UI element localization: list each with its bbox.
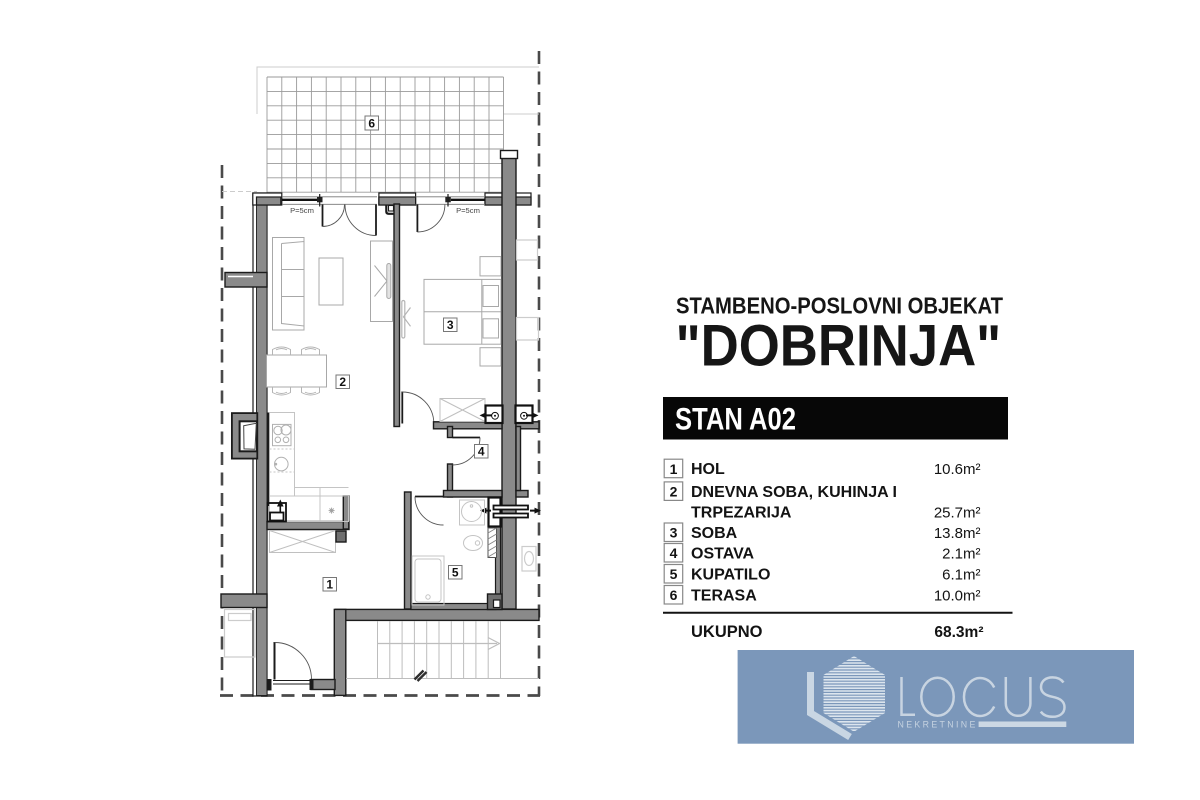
svg-text:DNEVNA SOBA, KUHINJA I: DNEVNA SOBA, KUHINJA I (691, 484, 897, 501)
svg-text:25.7m²: 25.7m² (934, 504, 981, 521)
svg-text:4: 4 (478, 445, 485, 459)
svg-text:P=5cm: P=5cm (290, 206, 314, 215)
svg-text:5: 5 (452, 566, 459, 580)
svg-text:TERASA: TERASA (691, 588, 757, 605)
svg-text:10.6m²: 10.6m² (934, 461, 981, 478)
svg-text:4: 4 (670, 545, 678, 561)
svg-text:3: 3 (447, 318, 454, 332)
svg-text:UKUPNO: UKUPNO (691, 623, 763, 641)
svg-text:P=5cm: P=5cm (456, 206, 480, 215)
svg-text:2: 2 (339, 375, 346, 389)
svg-text:OSTAVA: OSTAVA (691, 546, 755, 563)
svg-text:1: 1 (326, 578, 333, 592)
svg-text:3: 3 (670, 525, 678, 541)
svg-text:6.1m²: 6.1m² (942, 567, 980, 584)
svg-text:HOL: HOL (691, 461, 725, 478)
svg-text:STAN A02: STAN A02 (675, 401, 796, 437)
svg-text:TRPEZARIJA: TRPEZARIJA (691, 504, 792, 521)
svg-text:13.8m²: 13.8m² (934, 525, 981, 542)
svg-text:SOBA: SOBA (691, 525, 738, 542)
svg-text:6: 6 (670, 587, 678, 603)
svg-text:10.0m²: 10.0m² (934, 588, 981, 605)
svg-text:5: 5 (670, 566, 678, 582)
svg-text:2.1m²: 2.1m² (942, 546, 980, 563)
svg-text:NEKRETNINE: NEKRETNINE (898, 720, 978, 730)
svg-text:1: 1 (670, 461, 678, 477)
svg-text:68.3m²: 68.3m² (934, 624, 983, 641)
svg-text:KUPATILO: KUPATILO (691, 567, 770, 584)
svg-text:2: 2 (670, 484, 678, 500)
svg-text:6: 6 (368, 117, 375, 131)
svg-text:"DOBRINJA": "DOBRINJA" (676, 314, 1002, 379)
